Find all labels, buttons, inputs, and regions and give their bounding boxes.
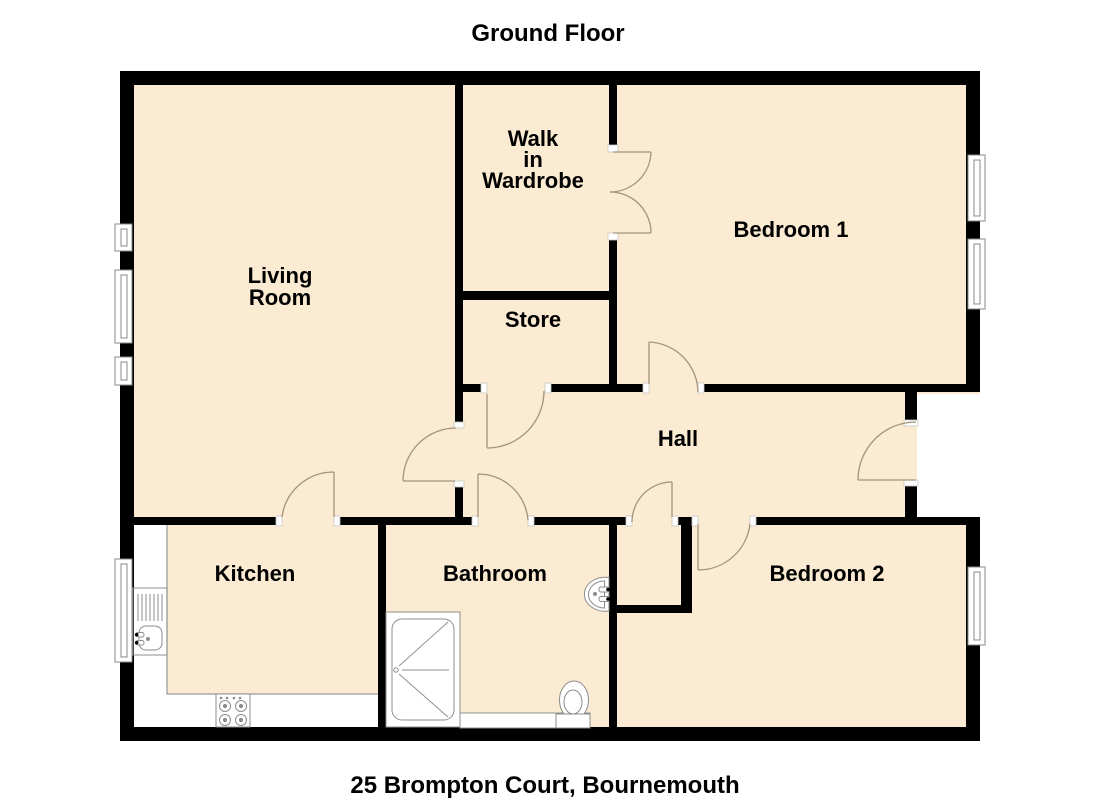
svg-text:Ground Floor: Ground Floor xyxy=(471,20,624,47)
svg-text:Kitchen: Kitchen xyxy=(215,561,296,586)
svg-text:Bedroom 1: Bedroom 1 xyxy=(734,217,849,242)
svg-text:25 Brompton Court, Bournemouth: 25 Brompton Court, Bournemouth xyxy=(350,772,739,799)
svg-text:Store: Store xyxy=(505,307,561,332)
svg-text:Hall: Hall xyxy=(658,426,698,451)
svg-text:Room: Room xyxy=(249,285,311,310)
svg-text:Wardrobe: Wardrobe xyxy=(482,168,584,193)
svg-text:Bedroom 2: Bedroom 2 xyxy=(770,561,885,586)
svg-text:Bathroom: Bathroom xyxy=(443,561,547,586)
